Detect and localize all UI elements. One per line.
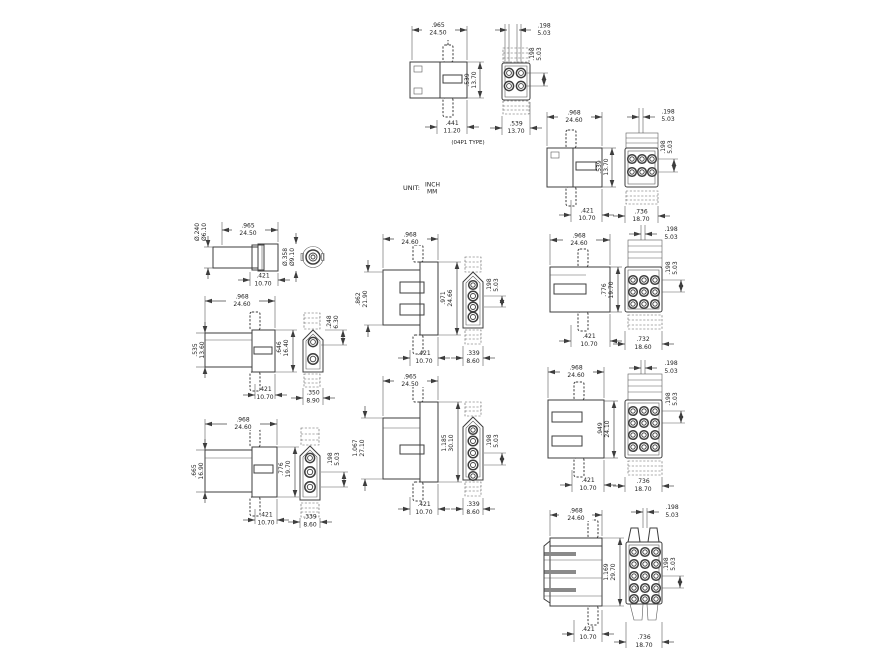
p15-pitch-top-in: .198 [665,504,679,511]
p09-pitch-side-mm: 5.03 [672,261,679,275]
p02-height-right-mm: 16.40 [283,339,290,356]
p02-face-mm: 8.90 [306,398,320,405]
p04-face-mm: 13.70 [507,128,524,135]
p06-height-in: .539 [596,160,603,174]
p03-width-in: .968 [236,417,250,424]
p15-pitch-side-mm: 5.03 [670,557,677,571]
p12-base-in: .421 [581,477,595,484]
p12-height-in: .949 [597,422,604,436]
p05v-height-left-mm: 27.10 [359,439,366,456]
p04-height-mm: 13.70 [471,71,478,88]
p05v-face-mm: 8.60 [466,509,480,516]
p06-pitch-top-in: .198 [661,109,675,116]
sheet-background [0,0,872,658]
p06-face-mm: 18.70 [632,216,649,223]
p03-base-mm: 10.70 [257,520,274,527]
p06-face-in: .736 [634,209,648,216]
p04-pitch-top-in: .198 [537,23,551,30]
p06-width-in: .968 [567,110,581,117]
p12-width-in: .968 [569,365,583,372]
p04v-height-right-in: .971 [440,291,447,305]
p05v-pitch-side-mm: 5.03 [493,434,500,448]
p15-base-in: .421 [581,626,595,633]
cap-width-mm: 24.50 [239,230,256,237]
p05v-height-left-in: 1.067 [352,439,359,456]
p09-base-in: .421 [582,333,596,340]
p04-pitch-side-in: .198 [529,47,536,61]
p12-face-in: .736 [636,478,650,485]
p04-base-in: .441 [445,120,459,127]
p02-base-mm: 10.70 [256,394,273,401]
p09-face-mm: 18.60 [634,344,651,351]
p05v-base-in: .421 [417,501,431,508]
p04v-face-mm: 8.60 [466,358,480,365]
p05v-pitch-side-in: .198 [486,434,493,448]
p03-height-right-in: .776 [278,462,285,476]
p04v-width-mm: 24.60 [401,239,418,246]
p09-base-mm: 10.70 [580,341,597,348]
p02-pitch-side-mm: 6.30 [333,315,340,329]
cap-width-in: .965 [241,223,255,230]
p04-width-in: .965 [431,22,445,29]
p05v-height-right-in: 1.185 [441,434,448,451]
p12-pitch-top-in: .198 [664,360,678,367]
p02-base-in: .421 [258,386,272,393]
p12-face-mm: 18.70 [634,486,651,493]
p15-width-in: .968 [569,508,583,515]
unit-mm: MM [427,189,437,196]
p06-pitch-top-mm: 5.03 [661,116,675,123]
p09-width-mm: 24.60 [570,240,587,247]
p09-face-in: .732 [636,336,650,343]
p09-height-in: .776 [601,283,608,297]
p04v-pitch-side-mm: 5.03 [493,278,500,292]
p15-width-mm: 24.60 [567,515,584,522]
unit-label: UNIT: [403,184,420,192]
p15-pitch-top-mm: 5.03 [665,512,679,519]
connector-drawing-sheet: UNIT: INCH MM .965 24.50 .539 13.70 .441… [0,0,872,658]
p15-height-mm: 29.70 [610,563,617,580]
p12-base-mm: 10.70 [579,485,596,492]
p05v-base-mm: 10.70 [415,509,432,516]
p04v-width-in: .968 [403,232,417,239]
p04v-height-right-mm: 24.66 [447,289,454,306]
p04v-face-in: .339 [466,350,480,357]
p02-pitch-side-in: .248 [326,315,333,329]
p15-height-in: 1.169 [603,563,610,580]
p03-pitch-side-mm: 5.03 [334,452,341,466]
p02-width-mm: 24.60 [233,301,250,308]
p15-face-mm: 18.70 [635,642,652,649]
p04-pitch-side-mm: 5.03 [536,47,543,61]
p15-base-mm: 10.70 [579,634,596,641]
cap-dia-large-in: Ø.358 [282,248,289,266]
cap-dia-small-in: Ø.240 [194,223,201,241]
p03-height-left-in: .665 [191,464,198,478]
unit-inch: INCH [425,182,440,189]
p06-pitch-side-mm: 5.03 [667,140,674,154]
p04v-pitch-side-in: .198 [486,278,493,292]
p15-face-in: .736 [637,634,651,641]
cap-base-in: .421 [256,273,270,280]
p12-pitch-side-mm: 5.03 [672,392,679,406]
p06-base-in: .421 [580,208,594,215]
p03-height-left-mm: 16.90 [198,462,205,479]
p06-pitch-side-in: .198 [660,140,667,154]
p04-pitch-top-mm: 5.03 [537,30,551,37]
p04-type-note: (04P1 TYPE) [451,140,484,146]
p06-height-mm: 13.70 [603,158,610,175]
p12-height-mm: 24.10 [604,420,611,437]
p03-face-mm: 8.60 [303,522,317,529]
p03-width-mm: 24.60 [234,424,251,431]
p04v-height-left-in: .862 [355,292,362,306]
p09-pitch-top-in: .198 [664,226,678,233]
p12-width-mm: 24.60 [567,372,584,379]
p06-width-mm: 24.60 [565,117,582,124]
p02-height-right-in: .646 [276,341,283,355]
p04v-base-in: .421 [417,350,431,357]
cap-dia-small-mm: Ø6.10 [201,223,208,241]
p09-pitch-side-in: .198 [665,261,672,275]
p04-width-mm: 24.50 [429,30,446,37]
p04v-height-left-mm: 21.90 [362,290,369,307]
p05v-width-mm: 24.50 [401,381,418,388]
p02-width-in: .968 [235,294,249,301]
p06-base-mm: 10.70 [578,215,595,222]
drawing-canvas: UNIT: INCH MM .965 24.50 .539 13.70 .441… [0,0,872,658]
p03-height-right-mm: 19.70 [285,460,292,477]
p12-pitch-top-mm: 5.03 [664,368,678,375]
p05v-width-in: .965 [403,374,417,381]
p03-pitch-side-in: .198 [327,452,334,466]
p04-face-in: .539 [509,121,523,128]
p09-width-in: .968 [572,233,586,240]
p12-pitch-side-in: .198 [665,392,672,406]
p09-height-mm: 19.70 [608,281,615,298]
p02-face-in: .350 [306,390,320,397]
p09-pitch-top-mm: 5.03 [664,234,678,241]
cap-dia-large-mm: Ø9.10 [289,248,296,266]
p03-base-in: .421 [259,512,273,519]
p03-face-in: .339 [303,514,317,521]
p05v-face-in: .339 [466,501,480,508]
p04-height-in: .539 [464,73,471,87]
p04-base-mm: 11.20 [443,128,460,135]
p15-pitch-side-in: .198 [663,557,670,571]
p05v-height-right-mm: 30.10 [448,434,455,451]
cap-base-mm: 10.70 [254,281,271,288]
p02-height-left-in: .535 [192,343,199,357]
p02-height-left-mm: 13.60 [199,341,206,358]
p04v-base-mm: 10.70 [415,358,432,365]
